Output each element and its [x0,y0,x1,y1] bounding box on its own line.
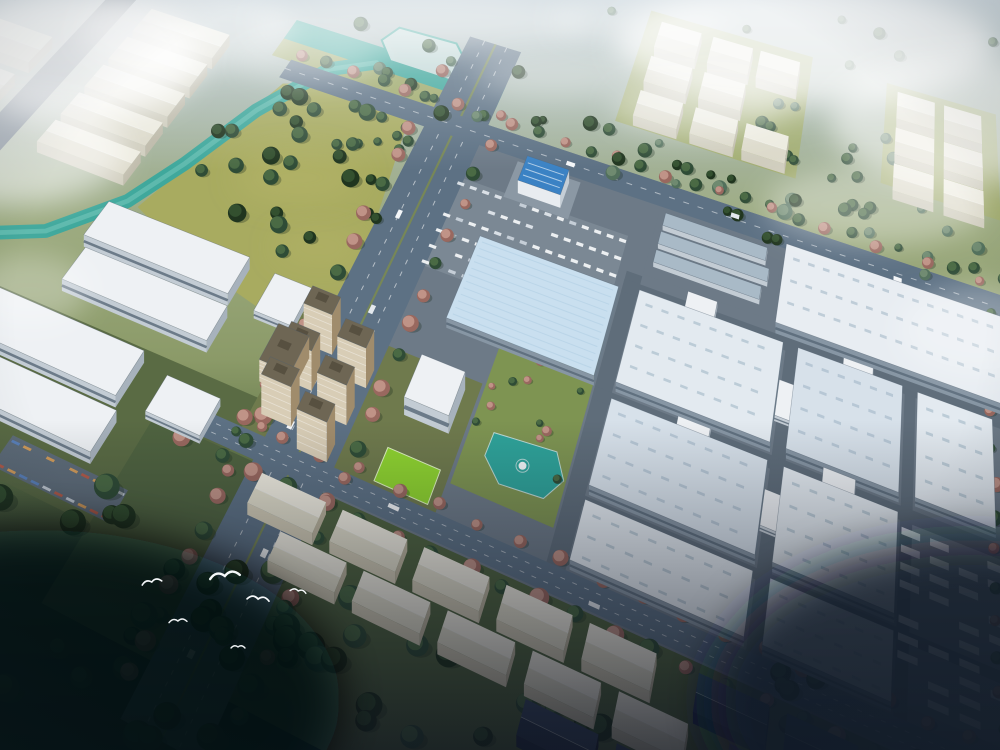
layer-vig [0,0,1000,750]
aerial-rendering [0,0,1000,750]
vignette [0,0,1000,750]
aerial-rendering-canvas [0,0,1000,750]
